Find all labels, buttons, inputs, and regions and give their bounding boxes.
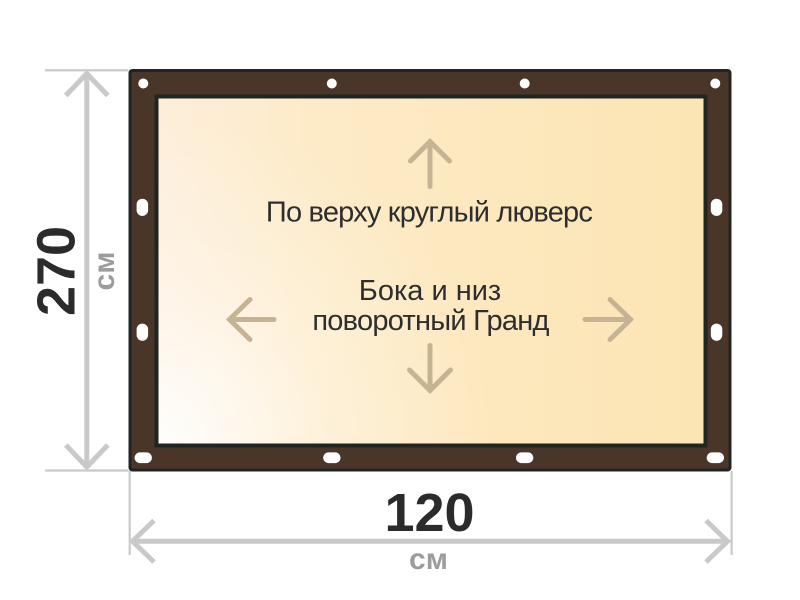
- svg-text:поворотный Гранд: поворотный Гранд: [312, 305, 549, 337]
- svg-text:Бока и низ: Бока и низ: [359, 275, 501, 307]
- svg-text:см: см: [88, 252, 121, 291]
- svg-text:По верху круглый люверс: По верху круглый люверс: [266, 197, 592, 229]
- svg-text:270: 270: [27, 226, 87, 316]
- svg-text:120: 120: [384, 483, 474, 543]
- svg-text:см: см: [409, 543, 448, 576]
